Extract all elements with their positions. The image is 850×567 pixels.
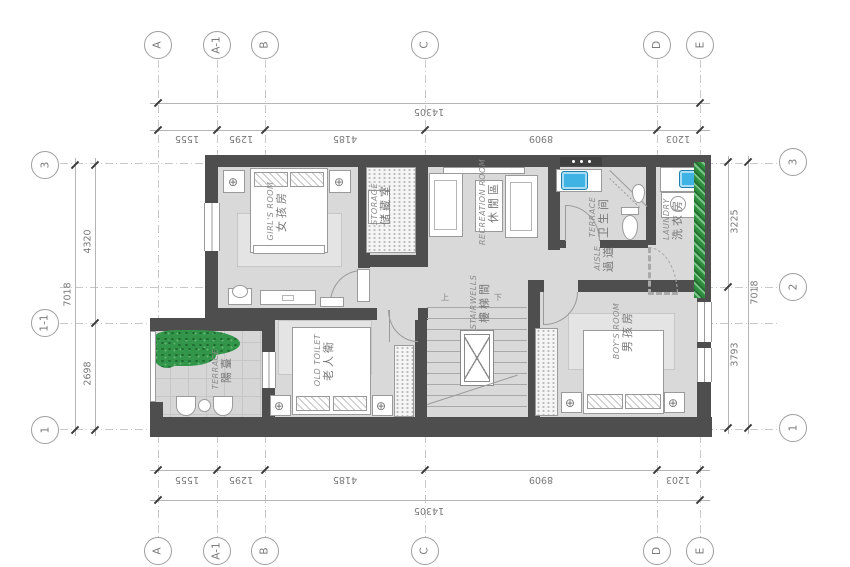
grid-bubble-label: B	[259, 547, 271, 554]
grid-bubble-label: A-1	[211, 542, 223, 559]
wall-top	[205, 155, 700, 167]
wall-boys-top	[578, 280, 700, 292]
dim-line-right-segments	[728, 156, 729, 434]
dim-line-left-total	[75, 158, 76, 436]
dim-right-seg-2: 3793	[730, 333, 741, 377]
grid-bubble-top-e: E	[686, 31, 714, 59]
dim-top-seg-4: 8909	[516, 133, 566, 144]
dim-line-left-segments	[95, 158, 96, 436]
light-dot-icon	[572, 160, 575, 163]
window-old-room	[262, 352, 276, 388]
terrace-railing	[150, 331, 156, 402]
dim-right-total: 7018	[750, 271, 761, 315]
grid-bubble-label: D	[651, 41, 663, 49]
terrace-planter	[213, 396, 233, 416]
grid-bubble-label: D	[651, 547, 663, 555]
grid-bubble-label: A-1	[211, 36, 223, 53]
dim-top-seg-2: 1295	[216, 133, 266, 144]
dim-line-top-total	[150, 103, 710, 104]
dim-left-seg-1: 4320	[83, 220, 94, 264]
dim-bottom-total: 14305	[399, 505, 459, 516]
dim-left-seg-2: 2698	[83, 352, 94, 396]
girls-dresser-detail	[282, 295, 294, 301]
old-bed-pillow	[296, 396, 330, 411]
dim-left-total: 7018	[63, 273, 74, 317]
grid-bubble-top-d: D	[643, 31, 671, 59]
wall-bath-bottom-left	[548, 240, 566, 248]
wall-girls-old	[205, 308, 377, 320]
wall-storage-right	[416, 155, 428, 255]
bath-sink	[561, 171, 588, 190]
grid-bubble-label: E	[694, 42, 706, 49]
boys-bed-pillow	[625, 394, 661, 409]
terrace-plants	[152, 340, 180, 368]
grid-bubble-label: B	[259, 41, 271, 48]
grid-bubble-right-2: 2	[779, 273, 807, 301]
grid-bubble-label: E	[694, 548, 706, 555]
grid-bubble-bottom-a: A	[144, 537, 172, 565]
grid-bubble-top-c: C	[411, 31, 439, 59]
stair-up-mark: 上	[441, 292, 449, 303]
dim-bottom-seg-3: 4185	[320, 474, 370, 485]
grid-bubble-right-3: 3	[779, 148, 807, 176]
floor-plan-drawing: 14305 1555 1295 4185 8909 1203 1555 1295…	[0, 0, 850, 567]
dim-bottom-seg-2: 1295	[216, 474, 266, 485]
grid-bubble-bottom-b: B	[251, 537, 279, 565]
grid-bubble-label: C	[419, 41, 431, 48]
wall-boys-top-stub	[528, 280, 544, 292]
storage-cabinet	[368, 190, 390, 224]
old-shelf	[320, 297, 344, 307]
window-girls-room	[204, 203, 220, 251]
ceiling-lamp-icon	[228, 176, 238, 188]
grid-bubble-top-a: A	[144, 31, 172, 59]
girls-door-leaf	[357, 269, 370, 302]
grid-bubble-bottom-c: C	[411, 537, 439, 565]
grid-bubble-label: A	[152, 547, 164, 554]
girls-bed-bench	[253, 245, 325, 254]
grid-bubble-bottom-d: D	[643, 537, 671, 565]
grid-bubble-top-b: B	[251, 31, 279, 59]
boys-wardrobe	[535, 328, 558, 416]
grid-bubble-label: 2	[787, 284, 799, 291]
old-bed-pillow	[333, 396, 367, 411]
wall-storage-bottom	[365, 255, 428, 267]
wall-terrace-corner	[150, 402, 163, 417]
ceiling-lamp-icon	[334, 176, 344, 188]
dim-bottom-seg-1: 1555	[162, 474, 212, 485]
ceiling-lamp-icon	[668, 397, 678, 409]
boys-bed-pillow	[587, 394, 623, 409]
window-boys-room-1	[697, 302, 712, 342]
washing-machine-drum	[670, 196, 686, 212]
grid-bubble-label: 1	[787, 425, 799, 432]
dim-bottom-seg-4: 8909	[516, 474, 566, 485]
grid-bubble-label: C	[419, 547, 431, 554]
ceiling-lamp-icon	[376, 400, 386, 412]
grid-bubble-label: 1	[39, 427, 51, 434]
grid-bubble-bottom-a1: A-1	[203, 537, 231, 565]
dim-right-seg-1: 3225	[730, 200, 741, 244]
light-dot-icon	[580, 160, 583, 163]
grid-bubble-left-1-1: 1-1	[31, 309, 59, 337]
terrace-planter	[176, 396, 196, 416]
wall-bottom	[150, 417, 712, 437]
stair-shaft	[460, 330, 494, 386]
grid-bubble-left-3: 3	[31, 151, 59, 179]
window-boys-room-2	[697, 348, 712, 382]
grid-bubble-left-1: 1	[31, 416, 59, 444]
dim-top-seg-5: 1203	[653, 133, 703, 144]
recreation-sofa-right-cushion	[510, 182, 532, 231]
dim-line-bottom-total	[150, 500, 710, 501]
dim-top-seg-3: 4185	[320, 133, 370, 144]
ceiling-lamp-icon	[565, 397, 575, 409]
dim-top-seg-1: 1555	[162, 133, 212, 144]
grid-bubble-bottom-e: E	[686, 537, 714, 565]
toilet-tank	[621, 207, 639, 215]
recreation-table	[475, 180, 503, 232]
ceiling-lamp-icon	[274, 400, 284, 412]
grid-bubble-right-1: 1	[779, 414, 807, 442]
wall-bath-laundry	[646, 155, 656, 245]
girls-bed-pillow	[254, 172, 288, 187]
stair-down-mark: 下	[494, 292, 502, 303]
old-wardrobe	[394, 345, 414, 417]
terrace-planter-round	[198, 399, 211, 412]
laundry-green-tile	[694, 162, 705, 298]
girls-bed-pillow	[290, 172, 324, 187]
wall-bath-bottom-right	[600, 240, 648, 248]
dim-top-total: 14305	[399, 106, 459, 117]
recreation-sofa-left-cushion	[434, 180, 457, 230]
dim-bottom-seg-5: 1203	[653, 474, 703, 485]
girls-chair	[232, 285, 248, 298]
grid-bubble-label: A	[152, 41, 164, 48]
grid-bubble-top-a1: A-1	[203, 31, 231, 59]
grid-bubble-label: 3	[787, 159, 799, 166]
dim-line-top-segments	[150, 130, 710, 131]
dim-line-bottom-segments	[150, 470, 710, 471]
grid-bubble-label: 1-1	[39, 314, 51, 331]
bath-light-band	[560, 157, 602, 166]
light-dot-icon	[588, 160, 591, 163]
grid-bubble-label: 3	[39, 162, 51, 169]
